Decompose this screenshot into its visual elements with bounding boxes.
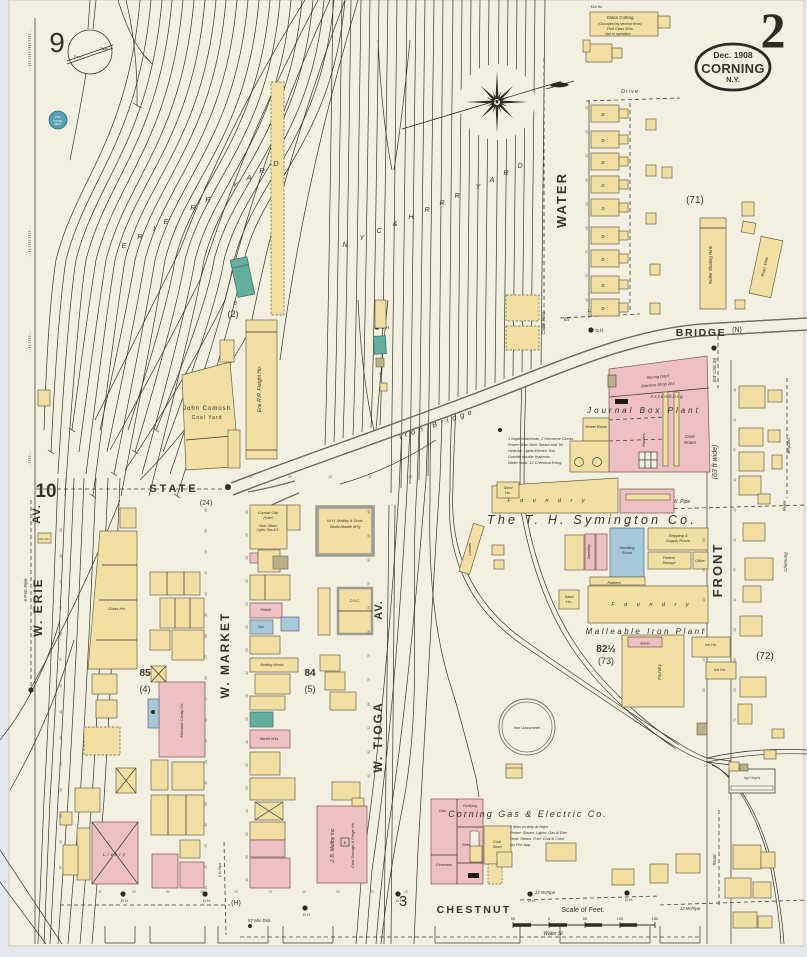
svg-text:Generator: Generator <box>436 863 453 867</box>
svg-text:25: 25 <box>245 533 249 538</box>
svg-text:32: 32 <box>733 598 737 602</box>
svg-text:80: 80 <box>59 528 63 532</box>
svg-text:12 W.Pipe: 12 W.Pipe <box>680 906 701 911</box>
svg-text:W. TIOGA: W. TIOGA <box>371 701 385 772</box>
svg-text:DEPT: DEPT <box>55 122 62 126</box>
svg-text:D: D <box>273 159 279 168</box>
svg-text:I: I <box>153 224 155 233</box>
svg-text:(72): (72) <box>756 651 774 662</box>
svg-text:66: 66 <box>245 855 249 859</box>
svg-text:40: 40 <box>204 823 208 827</box>
svg-text:Room: Room <box>622 551 632 555</box>
svg-text:Sand: Sand <box>504 486 514 490</box>
svg-text:Water Mast. 12 Chemical Extng.: Water Mast. 12 Chemical Extng. <box>508 461 562 465</box>
svg-text:75: 75 <box>585 274 589 278</box>
svg-text:40: 40 <box>733 388 737 392</box>
svg-text:1 Man on duty at Night: 1 Man on duty at Night <box>510 825 549 829</box>
svg-text:Coal: Coal <box>493 840 501 844</box>
svg-text:85: 85 <box>139 668 151 679</box>
svg-text:Heat:Air. Lights:Electric.Two: Heat:Air. Lights:Electric.Two <box>508 449 555 453</box>
svg-text:Storage: Storage <box>662 561 675 565</box>
svg-text:Ice Ho.: Ice Ho. <box>714 668 726 672</box>
svg-text:F o u n d r y: F o u n d r y <box>507 498 588 504</box>
svg-text:Agr'l Imp'ts: Agr'l Imp'ts <box>743 776 761 780</box>
svg-text:66: 66 <box>204 634 208 638</box>
svg-text:75: 75 <box>367 582 371 586</box>
svg-text:E: E <box>344 840 347 845</box>
svg-text:66: 66 <box>585 202 589 206</box>
svg-text:28: 28 <box>245 556 249 561</box>
svg-text:Marble W'ks: Marble W'ks <box>260 737 279 741</box>
svg-text:Core: Core <box>685 434 695 439</box>
svg-text:75: 75 <box>733 568 737 572</box>
svg-text:Coal Yard: Coal Yard <box>192 415 223 421</box>
svg-text:150: 150 <box>652 916 659 921</box>
svg-text:Assembling: Assembling <box>649 394 683 399</box>
svg-text:75: 75 <box>585 250 589 254</box>
svg-text:Div Ho: Div Ho <box>39 537 48 541</box>
svg-text:The T. H. Symington Co.: The T. H. Symington Co. <box>487 513 697 527</box>
svg-text:D.H.: D.H. <box>203 898 211 903</box>
svg-text:50: 50 <box>336 890 340 894</box>
svg-text:Studio-Marble M'f'g: Studio-Marble M'f'g <box>330 525 361 529</box>
svg-text:Ho.: Ho. <box>566 600 572 604</box>
svg-text:66: 66 <box>733 658 737 662</box>
svg-text:(4): (4) <box>140 684 151 694</box>
svg-text:66: 66 <box>367 630 371 634</box>
svg-text:66: 66 <box>59 814 63 818</box>
svg-text:75: 75 <box>733 718 737 722</box>
svg-text:Cold Storage & Forge Ho.: Cold Storage & Forge Ho. <box>350 822 355 868</box>
svg-text:&: & <box>393 221 398 228</box>
svg-text:40: 40 <box>585 298 589 302</box>
svg-text:40: 40 <box>204 886 208 890</box>
svg-text:..IIIIII..: ..IIIIII.. <box>27 330 32 353</box>
svg-text:Turn: Turn <box>73 55 80 59</box>
svg-text:W. ERIE: W. ERIE <box>31 577 45 636</box>
svg-text:(63' Chic.St): (63' Chic.St) <box>712 357 717 382</box>
svg-text:(Occupied by several firms): (Occupied by several firms) <box>598 22 642 26</box>
svg-text:R: R <box>205 195 211 204</box>
svg-text:28: 28 <box>585 106 589 111</box>
svg-text:F o u n d r y: F o u n d r y <box>611 602 692 608</box>
svg-text:Corning Gas & Electric Co.: Corning Gas & Electric Co. <box>448 809 608 819</box>
svg-text:D.H.: D.H. <box>528 898 536 903</box>
svg-text:..IIII..: ..IIII.. <box>27 450 32 468</box>
svg-text:80: 80 <box>204 676 208 680</box>
svg-text:40: 40 <box>702 598 706 602</box>
svg-text:28: 28 <box>245 694 249 699</box>
svg-text:80: 80 <box>367 558 371 562</box>
svg-text:12 W.Pipe: 12 W.Pipe <box>535 890 556 895</box>
svg-text:R: R <box>454 193 459 200</box>
svg-text:50: 50 <box>59 788 63 792</box>
svg-text:W.H. Maltby & Sons: W.H. Maltby & Sons <box>327 518 363 523</box>
svg-text:Wheel Room: Wheel Room <box>585 425 607 429</box>
svg-text:R: R <box>259 166 265 175</box>
svg-text:50: 50 <box>702 568 706 572</box>
svg-text:River: River <box>782 500 787 511</box>
svg-text:28: 28 <box>367 606 371 611</box>
svg-text:40: 40 <box>59 736 63 740</box>
svg-text:75: 75 <box>59 658 63 662</box>
svg-text:32: 32 <box>98 890 102 894</box>
svg-text:40: 40 <box>302 890 306 894</box>
svg-text:28: 28 <box>327 475 332 479</box>
svg-text:65': 65' <box>564 317 572 323</box>
svg-text:WATER: WATER <box>554 172 569 228</box>
svg-text:Table: Table <box>100 47 108 51</box>
svg-text:28: 28 <box>733 628 737 633</box>
svg-text:32: 32 <box>733 418 737 422</box>
svg-text:40: 40 <box>367 510 371 514</box>
svg-text:Lights: Gas & E.: Lights: Gas & E. <box>256 528 279 532</box>
svg-text:Hotel: Hotel <box>263 515 272 520</box>
svg-text:Dye: Dye <box>258 625 264 629</box>
svg-text:P.W.: P.W. <box>55 115 61 119</box>
svg-text:6 P.W. Pipe: 6 P.W. Pipe <box>23 578 28 602</box>
svg-text:D.H.: D.H. <box>596 328 605 333</box>
svg-text:(71): (71) <box>686 195 704 206</box>
svg-text:Room: Room <box>684 440 696 445</box>
svg-text:Drive: Drive <box>621 89 639 95</box>
svg-text:40: 40 <box>59 554 63 558</box>
svg-text:Handling: Handling <box>620 546 636 550</box>
svg-text:Livery: Livery <box>103 852 127 857</box>
svg-text:Journal Box Plant: Journal Box Plant <box>586 406 701 415</box>
svg-text:Iron Gasometer: Iron Gasometer <box>514 726 541 730</box>
svg-text:28: 28 <box>233 890 238 894</box>
svg-text:Flint Glass W'ks: Flint Glass W'ks <box>607 27 633 31</box>
svg-text:Heat: Steam. Fuel: Coal & Coke: Heat: Steam. Fuel: Coal & Coke. <box>510 837 565 841</box>
svg-text:80: 80 <box>702 688 706 692</box>
svg-text:28: 28 <box>59 762 63 767</box>
svg-text:AV.: AV. <box>373 600 385 620</box>
svg-text:#7 Min Dist: #7 Min Dist <box>248 918 271 923</box>
svg-text:25: 25 <box>733 508 737 513</box>
svg-text:(24): (24) <box>200 500 212 507</box>
svg-text:Glass Ho.: Glass Ho. <box>108 606 126 611</box>
svg-text:50: 50 <box>288 475 292 479</box>
svg-text:John Comosh: John Comosh <box>183 406 231 412</box>
svg-text:80: 80 <box>204 802 208 806</box>
svg-text:Not in operation: Not in operation <box>605 32 630 36</box>
svg-text:W. MARKET: W. MARKET <box>218 612 232 699</box>
svg-text:25: 25 <box>204 697 208 702</box>
svg-text:N.Y.: N.Y. <box>726 75 740 84</box>
svg-text:Chemung: Chemung <box>783 552 788 572</box>
svg-text:1 Night Watchman, 2 Kerosene C: 1 Night Watchman, 2 Kerosene Clocks <box>508 437 573 441</box>
svg-text:..IIIIIIIIIIIIIII..: ..IIIIIIIIIIIIIII.. <box>27 28 32 71</box>
svg-text:75: 75 <box>370 890 374 894</box>
svg-text:Foundry: Foundry <box>657 663 662 679</box>
svg-text:Annex: Annex <box>639 642 650 646</box>
svg-text:Dec. 1908: Dec. 1908 <box>713 50 752 60</box>
svg-text:Rattlers: Rattlers <box>607 581 620 585</box>
svg-text:84: 84 <box>304 668 316 679</box>
svg-text:40: 40 <box>733 478 737 482</box>
svg-text:25: 25 <box>204 655 208 660</box>
svg-text:Annealing: Annealing <box>587 544 591 560</box>
svg-text:R: R <box>137 232 143 241</box>
svg-text:32: 32 <box>248 475 252 479</box>
svg-text:Power: Steam. Lights: Gas & El: Power: Steam. Lights: Gas & Elec. <box>510 831 568 835</box>
svg-text:100: 100 <box>617 916 624 921</box>
svg-text:80: 80 <box>367 750 371 754</box>
svg-text:Office: Office <box>695 559 704 563</box>
svg-text:STATE: STATE <box>149 483 198 495</box>
svg-text:80: 80 <box>245 602 249 606</box>
svg-text:CORNING: CORNING <box>701 61 765 76</box>
svg-text:D.H.: D.H. <box>303 912 311 917</box>
svg-text:25: 25 <box>702 658 706 663</box>
svg-text:75: 75 <box>59 866 63 870</box>
svg-text:25: 25 <box>733 688 737 693</box>
svg-text:2: 2 <box>761 2 786 58</box>
svg-text:28: 28 <box>403 890 408 894</box>
svg-text:Outside double Hydrants.: Outside double Hydrants. <box>508 455 551 459</box>
svg-text:25: 25 <box>585 130 589 135</box>
svg-text:40: 40 <box>245 740 249 744</box>
svg-text:80: 80 <box>166 890 170 894</box>
svg-text:D: D <box>517 163 522 170</box>
svg-text:Pattern: Pattern <box>663 556 675 560</box>
svg-text:40: 40 <box>245 878 249 882</box>
svg-text:A: A <box>245 173 251 182</box>
svg-text:9: 9 <box>49 27 65 58</box>
svg-text:28: 28 <box>204 550 208 555</box>
svg-text:Sand: Sand <box>565 595 575 599</box>
svg-text:66: 66 <box>204 508 208 512</box>
svg-text:Shed: Shed <box>493 845 503 849</box>
svg-text:66: 66 <box>702 538 706 542</box>
svg-text:50: 50 <box>204 529 208 533</box>
svg-text:75: 75 <box>367 654 371 658</box>
svg-text:50: 50 <box>245 717 249 721</box>
svg-text:R: R <box>439 200 444 207</box>
svg-text:40: 40 <box>204 718 208 722</box>
svg-text:FRONT: FRONT <box>710 543 725 598</box>
svg-text:Erie R.R. Freight Ho.: Erie R.R. Freight Ho. <box>257 366 263 412</box>
svg-text:40: 40 <box>204 592 208 596</box>
svg-text:(73): (73) <box>598 656 614 666</box>
svg-text:25: 25 <box>245 579 249 584</box>
svg-text:28: 28 <box>199 890 204 894</box>
svg-text:R: R <box>503 170 508 177</box>
svg-text:40: 40 <box>204 781 208 785</box>
svg-text:Rattlers: Rattlers <box>641 433 646 447</box>
svg-text:25: 25 <box>204 571 208 576</box>
svg-text:82½: 82½ <box>596 644 615 655</box>
svg-text:50: 50 <box>132 890 136 894</box>
svg-text:75: 75 <box>733 448 737 452</box>
svg-text:32: 32 <box>245 671 249 675</box>
svg-text:Bottling Works: Bottling Works <box>260 663 283 667</box>
svg-text:Mohawk Candy Co.: Mohawk Candy Co. <box>179 703 184 738</box>
svg-text:Purifying: Purifying <box>463 804 477 808</box>
svg-text:28: 28 <box>204 844 208 849</box>
svg-text:A: A <box>489 177 495 184</box>
svg-text:Ho.: Ho. <box>505 491 511 495</box>
svg-text:Cattle Pens: Cattle Pens <box>541 311 546 335</box>
svg-text:75: 75 <box>702 628 706 632</box>
svg-text:50: 50 <box>583 916 588 921</box>
svg-text:CHESTNUT: CHESTNUT <box>437 904 512 916</box>
svg-text:D.V.C.: D.V.C. <box>350 599 360 603</box>
svg-text:Scale of Feet.: Scale of Feet. <box>561 907 604 914</box>
svg-text:50: 50 <box>59 840 63 844</box>
svg-text:(H): (H) <box>231 900 241 907</box>
svg-text:D.H.: D.H. <box>121 898 129 903</box>
svg-text:Plaster: Plaster <box>260 608 272 612</box>
svg-text:..IIIIIIIIII..: ..IIIIIIIIII.. <box>27 225 32 257</box>
svg-text:(N): (N) <box>732 327 742 334</box>
svg-text:Power: Elec.Mot'r Steam and Te: Power: Elec.Mot'r Steam and Tel. <box>508 443 564 447</box>
svg-text:(2): (2) <box>228 309 239 319</box>
svg-text:6 W.Pipe: 6 W.Pipe <box>218 863 222 877</box>
svg-text:40: 40 <box>204 613 208 617</box>
svg-text:32: 32 <box>368 475 372 479</box>
svg-text:D.H.: D.H. <box>396 898 404 903</box>
svg-text:Lumber: Lumber <box>468 542 472 556</box>
svg-text:Roller Skating Rink: Roller Skating Rink <box>708 245 713 284</box>
svg-text:66: 66 <box>585 226 589 230</box>
svg-text:Ice Ho.: Ice Ho. <box>705 643 717 647</box>
svg-text:(5): (5) <box>305 684 316 694</box>
svg-text:Road: Road <box>712 854 717 865</box>
svg-text:40: 40 <box>585 154 589 158</box>
svg-text:No Fire App.: No Fire App. <box>510 843 531 847</box>
svg-text:32: 32 <box>59 580 63 584</box>
svg-text:J. B. Maltby Inc.: J. B. Maltby Inc. <box>330 827 336 864</box>
svg-text:25: 25 <box>204 865 208 870</box>
svg-text:32: 32 <box>733 538 737 542</box>
svg-text:50: 50 <box>245 648 249 652</box>
svg-text:40: 40 <box>245 809 249 813</box>
svg-text:75: 75 <box>59 606 63 610</box>
svg-text:32: 32 <box>245 763 249 767</box>
svg-text:Gas.: Gas. <box>439 808 447 813</box>
svg-text:28: 28 <box>204 760 208 765</box>
svg-text:40: 40 <box>59 710 63 714</box>
svg-text:D.H.: D.H. <box>625 897 633 902</box>
svg-text:R: R <box>190 203 196 212</box>
svg-text:66: 66 <box>59 632 63 636</box>
svg-text:R: R <box>424 207 429 214</box>
svg-text:66: 66 <box>367 702 371 706</box>
svg-text:25: 25 <box>245 625 249 630</box>
svg-text:28: 28 <box>204 739 208 744</box>
svg-text:Glass Cutting: Glass Cutting <box>606 15 634 20</box>
svg-text:50: 50 <box>367 774 371 778</box>
svg-text:25: 25 <box>367 534 371 539</box>
svg-text:50: 50 <box>511 916 516 921</box>
svg-text:80: 80 <box>245 832 249 836</box>
svg-text:75: 75 <box>367 678 371 682</box>
svg-text:BRIDGE: BRIDGE <box>676 327 726 339</box>
svg-text:28: 28 <box>407 475 412 479</box>
svg-text:32: 32 <box>367 726 371 730</box>
svg-text:75: 75 <box>268 890 272 894</box>
svg-text:50: 50 <box>245 786 249 790</box>
svg-text:32: 32 <box>59 684 63 688</box>
svg-text:Kiln Ho.: Kiln Ho. <box>591 5 604 9</box>
svg-text:AV.: AV. <box>31 504 43 524</box>
svg-text:10: 10 <box>35 481 56 502</box>
svg-text:(63 ft wide): (63 ft wide) <box>712 445 719 480</box>
svg-text:66: 66 <box>585 178 589 182</box>
svg-text:80: 80 <box>245 510 249 514</box>
svg-text:Supply Room: Supply Room <box>666 538 691 543</box>
